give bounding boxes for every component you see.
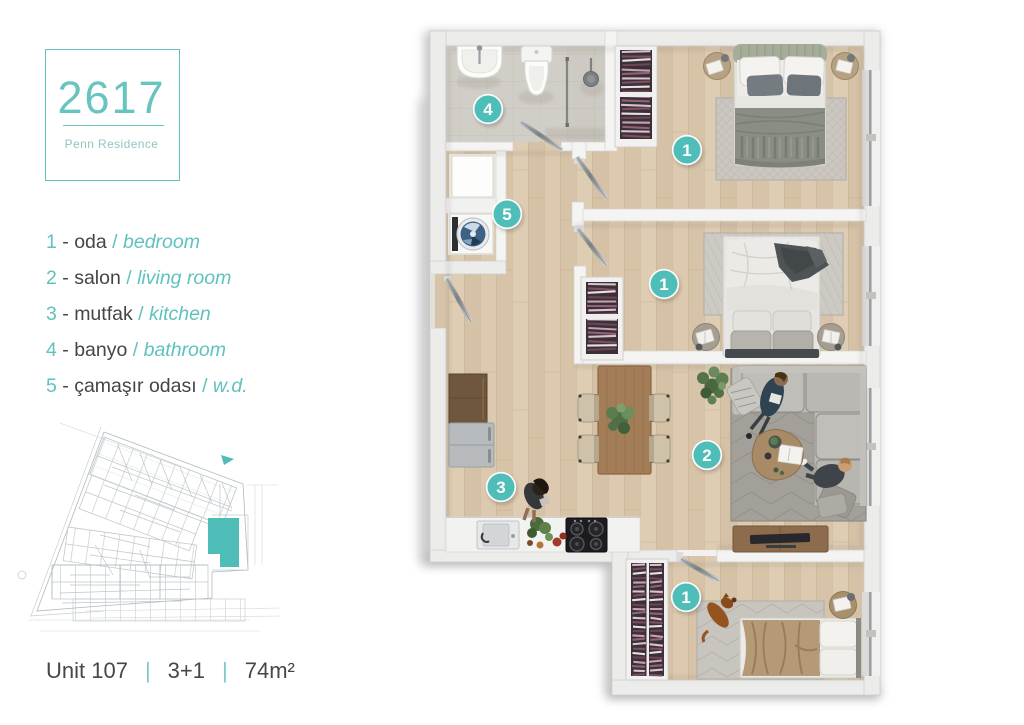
- svg-text:1: 1: [682, 141, 691, 160]
- svg-text:1: 1: [659, 275, 668, 294]
- svg-text:2: 2: [702, 446, 711, 465]
- svg-text:5: 5: [502, 205, 511, 224]
- svg-text:4: 4: [483, 100, 493, 119]
- svg-text:3: 3: [496, 478, 505, 497]
- svg-text:1: 1: [681, 588, 690, 607]
